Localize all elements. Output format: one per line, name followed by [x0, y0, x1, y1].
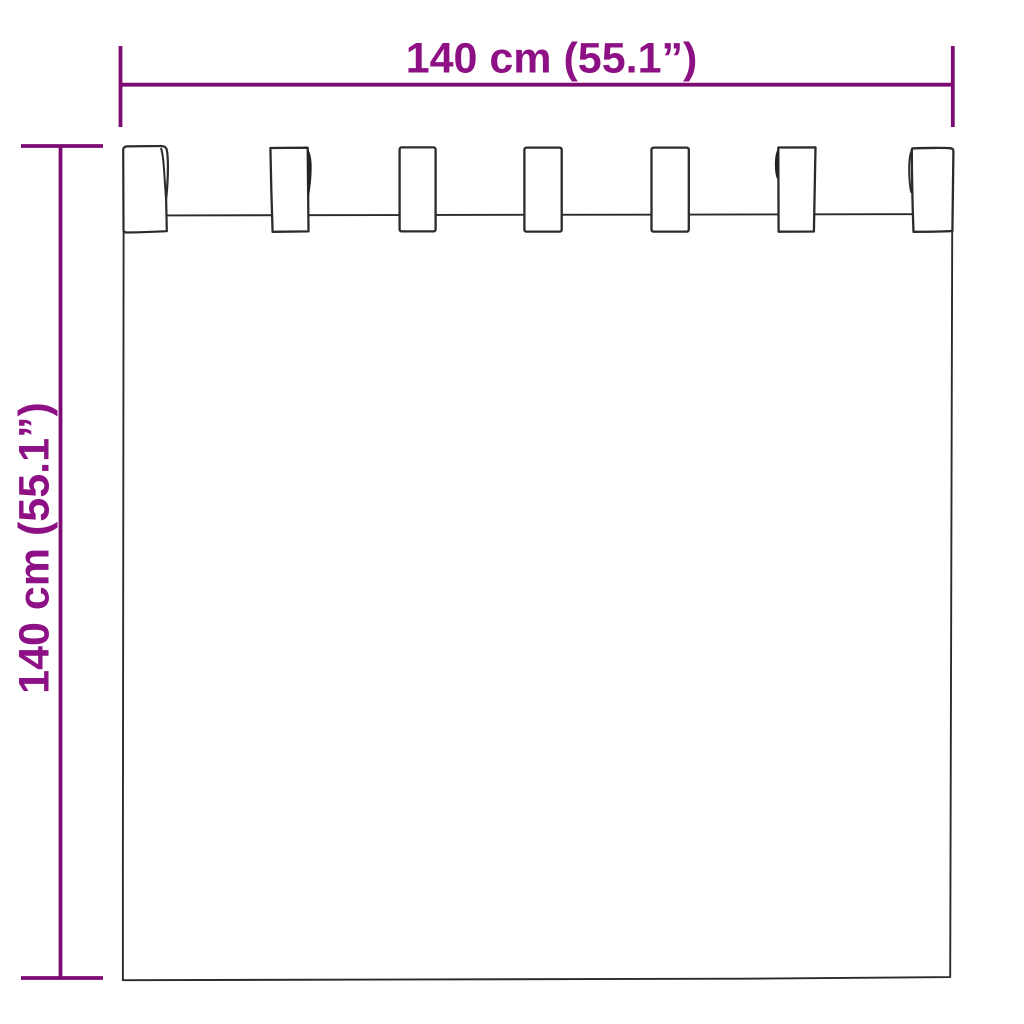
svg-text:140 cm (55.1”): 140 cm (55.1”) [406, 35, 698, 83]
svg-text:140 cm (55.1”): 140 cm (55.1”) [11, 402, 59, 694]
